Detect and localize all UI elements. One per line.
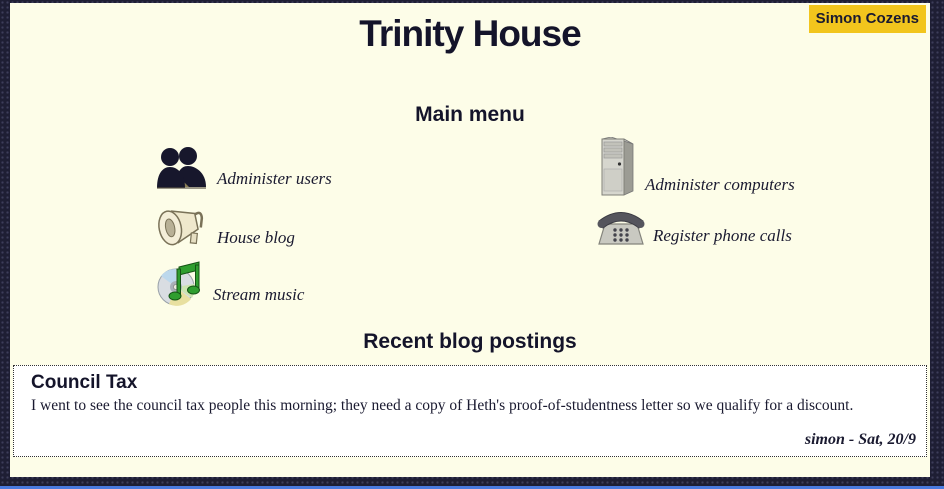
main-menu-heading: Main menu <box>10 103 930 127</box>
blog-post-body: I went to see the council tax people thi… <box>31 397 916 415</box>
menu-item-label: Stream music <box>213 285 304 307</box>
menu-item-label: Administer users <box>217 169 332 191</box>
blog-post: Council Tax I went to see the council ta… <box>13 365 927 457</box>
page-title: Trinity House <box>10 13 930 55</box>
menu-item-stream-music[interactable]: Stream music <box>155 259 332 307</box>
main-menu-right-column: Administer computers <box>595 137 795 257</box>
telephone-icon <box>595 206 647 248</box>
menu-item-house-blog[interactable]: House blog <box>155 200 332 250</box>
menu-item-administer-users[interactable]: Administer users <box>155 145 332 191</box>
menu-item-label: Administer computers <box>645 175 795 197</box>
blog-post-title: Council Tax <box>31 372 916 394</box>
blog-post-signature: simon - Sat, 20/9 <box>31 431 916 449</box>
menu-item-label: House blog <box>217 228 295 250</box>
menu-item-administer-computers[interactable]: Administer computers <box>595 137 795 197</box>
blog-section-heading: Recent blog postings <box>10 330 930 354</box>
app-window: Simon Cozens Trinity House Main menu Adm… <box>0 0 944 489</box>
megaphone-icon <box>155 200 211 250</box>
menu-item-label: Register phone calls <box>653 226 792 248</box>
page-content: Simon Cozens Trinity House Main menu Adm… <box>10 3 930 477</box>
menu-item-register-phone-calls[interactable]: Register phone calls <box>595 206 795 248</box>
users-icon <box>155 145 211 191</box>
computer-tower-icon <box>595 137 639 197</box>
main-menu-left-column: Administer users House blog <box>155 145 332 316</box>
cd-music-icon <box>155 259 207 307</box>
